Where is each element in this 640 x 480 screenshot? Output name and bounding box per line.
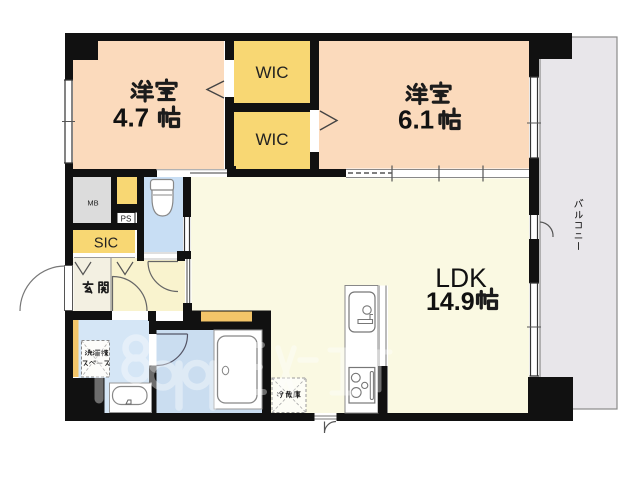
svg-text:4.7: 4.7 xyxy=(113,103,149,133)
svg-text:6.1: 6.1 xyxy=(398,105,434,135)
svg-text:14.9: 14.9 xyxy=(426,288,475,316)
svg-text:SIC: SIC xyxy=(94,236,118,252)
svg-text:MB: MB xyxy=(87,199,98,208)
svg-text:WIC: WIC xyxy=(255,63,288,82)
svg-text:WIC: WIC xyxy=(255,130,288,149)
svg-text:PS: PS xyxy=(121,215,132,224)
